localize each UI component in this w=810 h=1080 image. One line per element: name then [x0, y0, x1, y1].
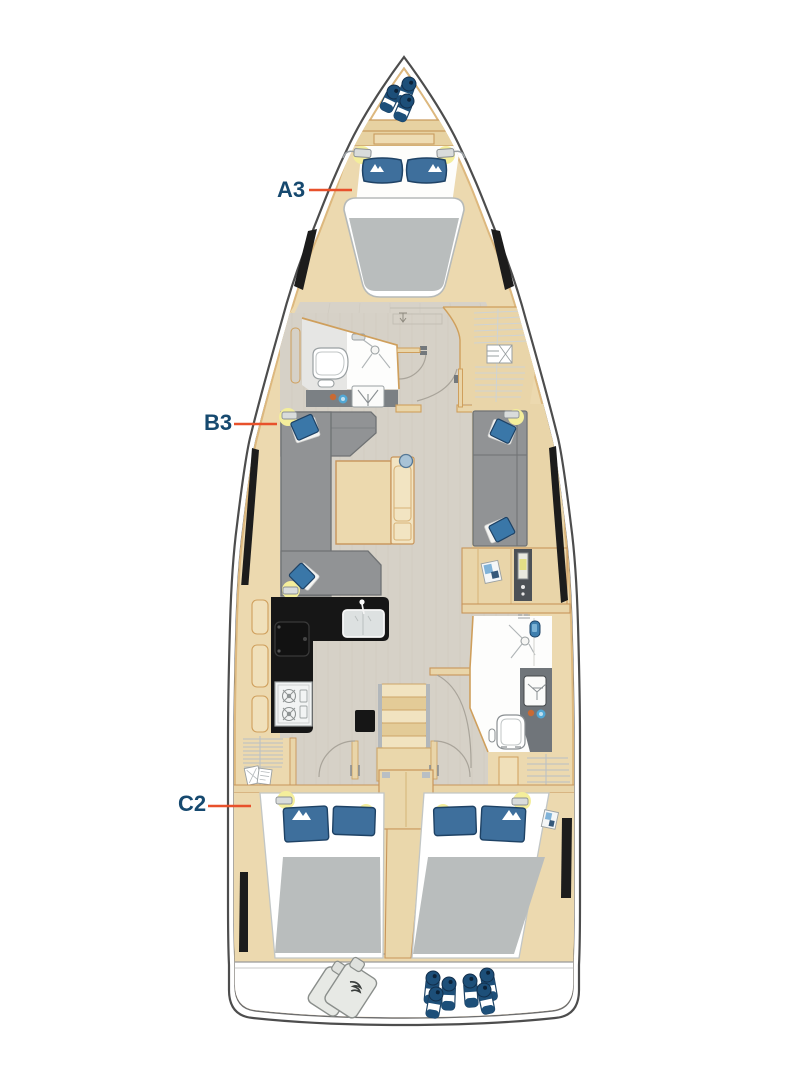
svg-text:A3: A3 [277, 177, 305, 202]
svg-text:B3: B3 [204, 410, 232, 435]
svg-text:C2: C2 [178, 791, 206, 816]
